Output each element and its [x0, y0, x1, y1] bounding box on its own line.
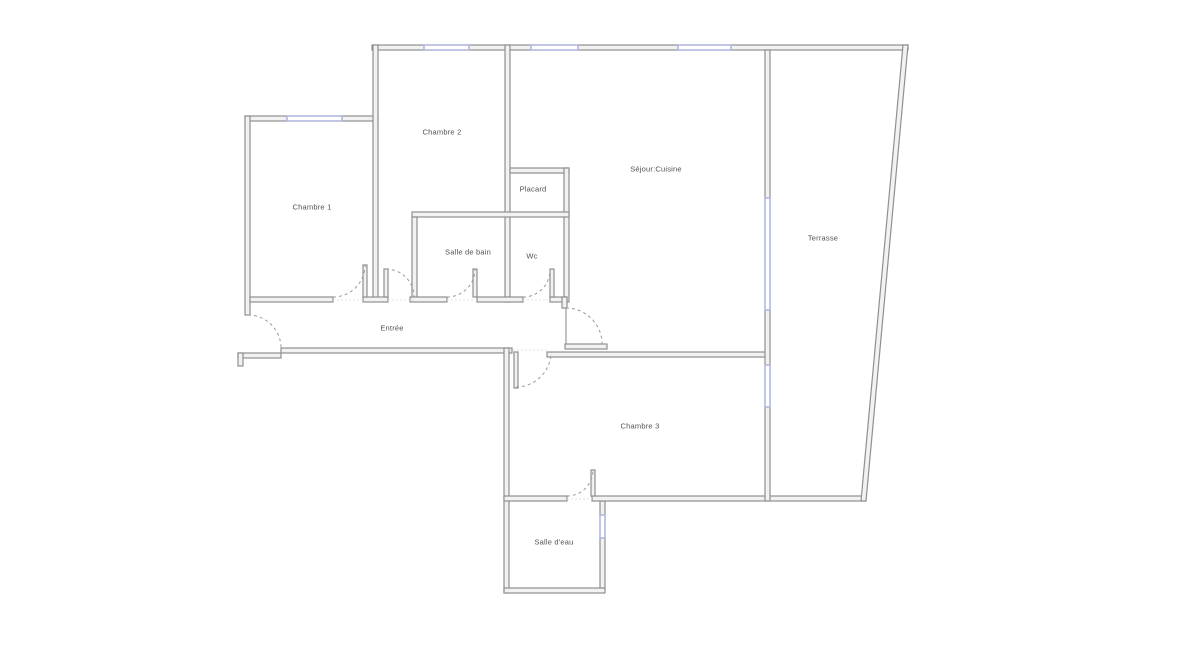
room-label-salle-d-eau: Salle d'eau [534, 538, 573, 547]
wall [564, 168, 569, 302]
window [765, 198, 770, 310]
room-label-chambre-1: Chambre 1 [293, 203, 332, 212]
wall [592, 496, 866, 501]
window [287, 116, 342, 121]
door-leaf [473, 269, 477, 297]
room-label-sejour-cuisine: Séjour:Cuisine [630, 165, 682, 174]
window [678, 45, 731, 50]
wall [469, 45, 531, 50]
wall [373, 45, 378, 300]
walls-group [238, 45, 908, 593]
wall [250, 297, 333, 302]
wall [765, 310, 770, 365]
door-leaf [384, 269, 388, 297]
wall [510, 168, 569, 173]
wall [412, 217, 417, 300]
door-swing-salle-de-bain [447, 269, 475, 297]
wall [578, 45, 678, 50]
room-label-wc: Wc [526, 252, 537, 261]
door-swing-entree [248, 315, 281, 348]
door-leaf [363, 265, 367, 297]
wall [245, 116, 287, 121]
wall [562, 297, 567, 308]
wall-slanted [861, 45, 908, 501]
room-label-placard: Placard [520, 185, 547, 194]
wall [412, 212, 569, 217]
door-swing-sejour [566, 308, 602, 344]
wall [731, 45, 908, 50]
window [600, 515, 605, 538]
wall [504, 348, 509, 593]
wall [547, 352, 768, 357]
wall [765, 50, 770, 198]
room-label-salle-de-bain: Salle de bain [445, 248, 491, 257]
door-leaf [550, 269, 554, 297]
wall [504, 588, 605, 593]
wall [238, 353, 243, 366]
wall [565, 344, 607, 349]
wall [281, 348, 512, 353]
wall [600, 538, 605, 588]
wall [372, 45, 424, 50]
window [531, 45, 578, 50]
wall [505, 45, 510, 302]
room-label-chambre-3: Chambre 3 [621, 422, 660, 431]
wall [504, 496, 567, 501]
wall [363, 297, 388, 302]
room-label-chambre-2: Chambre 2 [423, 128, 462, 137]
wall [477, 297, 523, 302]
door-swing-chambre-1 [333, 265, 365, 297]
wall [765, 407, 770, 501]
window [765, 365, 770, 407]
wall [410, 297, 447, 302]
wall [238, 353, 281, 358]
door-swing-chambre-2 [386, 269, 414, 297]
window [424, 45, 469, 50]
room-label-terrasse: Terrasse [808, 234, 838, 243]
floor-plan-drawing [0, 0, 1183, 648]
door-swing-salle-d-eau [567, 470, 593, 496]
door-swing-wc [523, 270, 550, 297]
door-swing-chambre-3 [516, 352, 551, 387]
wall [245, 116, 250, 315]
door-leaf [514, 352, 518, 388]
floor-plan-canvas: Chambre 1 Chambre 2 Placard Salle de bai… [0, 0, 1183, 648]
room-label-entree: Entrée [380, 324, 403, 333]
wall [600, 501, 605, 515]
